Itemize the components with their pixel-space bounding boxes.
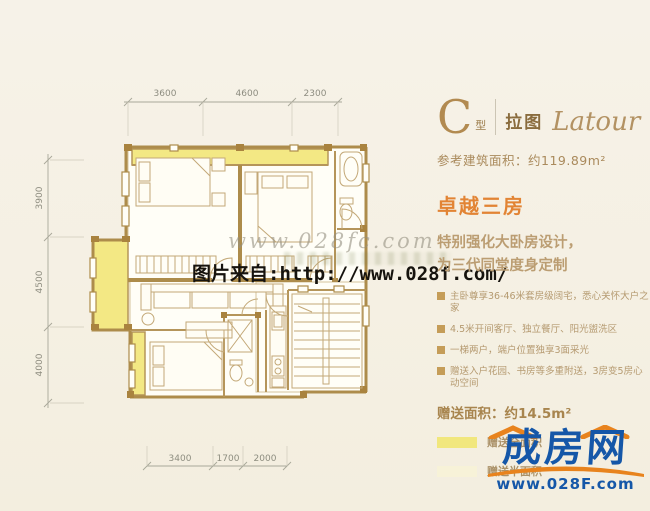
kitchen-fixtures (270, 306, 286, 388)
dim-left-1: 3900 (35, 186, 45, 209)
legend-swatch-half (437, 466, 477, 477)
unit-description: 特别强化大卧房设计， 为三代同堂度身定制 (437, 232, 649, 278)
ruler-left: 3900 4500 4000 (35, 154, 84, 408)
site-logo: 成房网 www.028F.com (483, 429, 648, 493)
floorplan-page: 3600 4600 2300 3900 4500 4000 3400 1700 … (0, 0, 650, 511)
gift-area-line: 赠送面积：约14.5m² (437, 402, 649, 422)
bullet-square-icon (437, 346, 445, 354)
feature-bullet: 4.5米开间客厅、独立餐厅、阳光盥洗区 (437, 324, 649, 336)
bullet-square-icon (437, 367, 445, 375)
desc-line-2: 为三代同堂度身定制 (437, 255, 649, 278)
feature-bullet: 赠送入户花园、书房等多重附送，3房变5房心动空间 (437, 366, 649, 390)
unit-headline: 卓越三房 (437, 190, 649, 219)
desc-line-1: 特别强化大卧房设计， (437, 232, 649, 255)
dim-left-3: 4000 (35, 353, 45, 376)
dim-top-2: 4600 (236, 89, 259, 99)
dim-top-1: 3600 (154, 89, 177, 99)
logo-url-text: www.028F.com (483, 475, 648, 493)
feature-bullet: 主卧尊享36-46米套房级阔宅，悉心关怀大户之家 (437, 291, 649, 315)
dim-top-3: 2300 (304, 89, 327, 99)
header-divider (495, 99, 496, 135)
dim-left-2: 4500 (35, 270, 45, 293)
bullet-square-icon (437, 292, 445, 300)
unit-name-en: Latour (552, 107, 640, 137)
feature-bullet: 一梯两户，端户位置独享3面采光 (437, 345, 649, 357)
ruler-bottom: 3400 1700 2000 (143, 446, 291, 470)
site-watermark-script: www.028fc.com (228, 229, 436, 253)
dim-bottom-2: 1700 (217, 454, 240, 464)
feature-bullets: 主卧尊享36-46米套房级阔宅，悉心关怀大户之家 4.5米开间客厅、独立餐厅、阳… (437, 291, 649, 390)
unit-type-suffix: 型 (475, 117, 486, 133)
legend-swatch-full (437, 437, 477, 448)
ruler-top: 3600 4600 2300 (124, 89, 342, 136)
bullet-square-icon (437, 325, 445, 333)
dim-bottom-1: 3400 (169, 454, 192, 464)
bay-window-gift-area (93, 240, 128, 330)
bedroom3-furniture (150, 342, 222, 390)
logo-brand-text: 成房网 (482, 429, 650, 470)
dim-bottom-3: 2000 (254, 454, 277, 464)
unit-type-letter: C (437, 98, 472, 137)
unit-name-cn: 拉图 (505, 108, 543, 133)
reference-area-line: 参考建筑面积：约119.89m² (437, 150, 649, 169)
unit-type-header: C 型 拉图 Latour (437, 98, 649, 137)
